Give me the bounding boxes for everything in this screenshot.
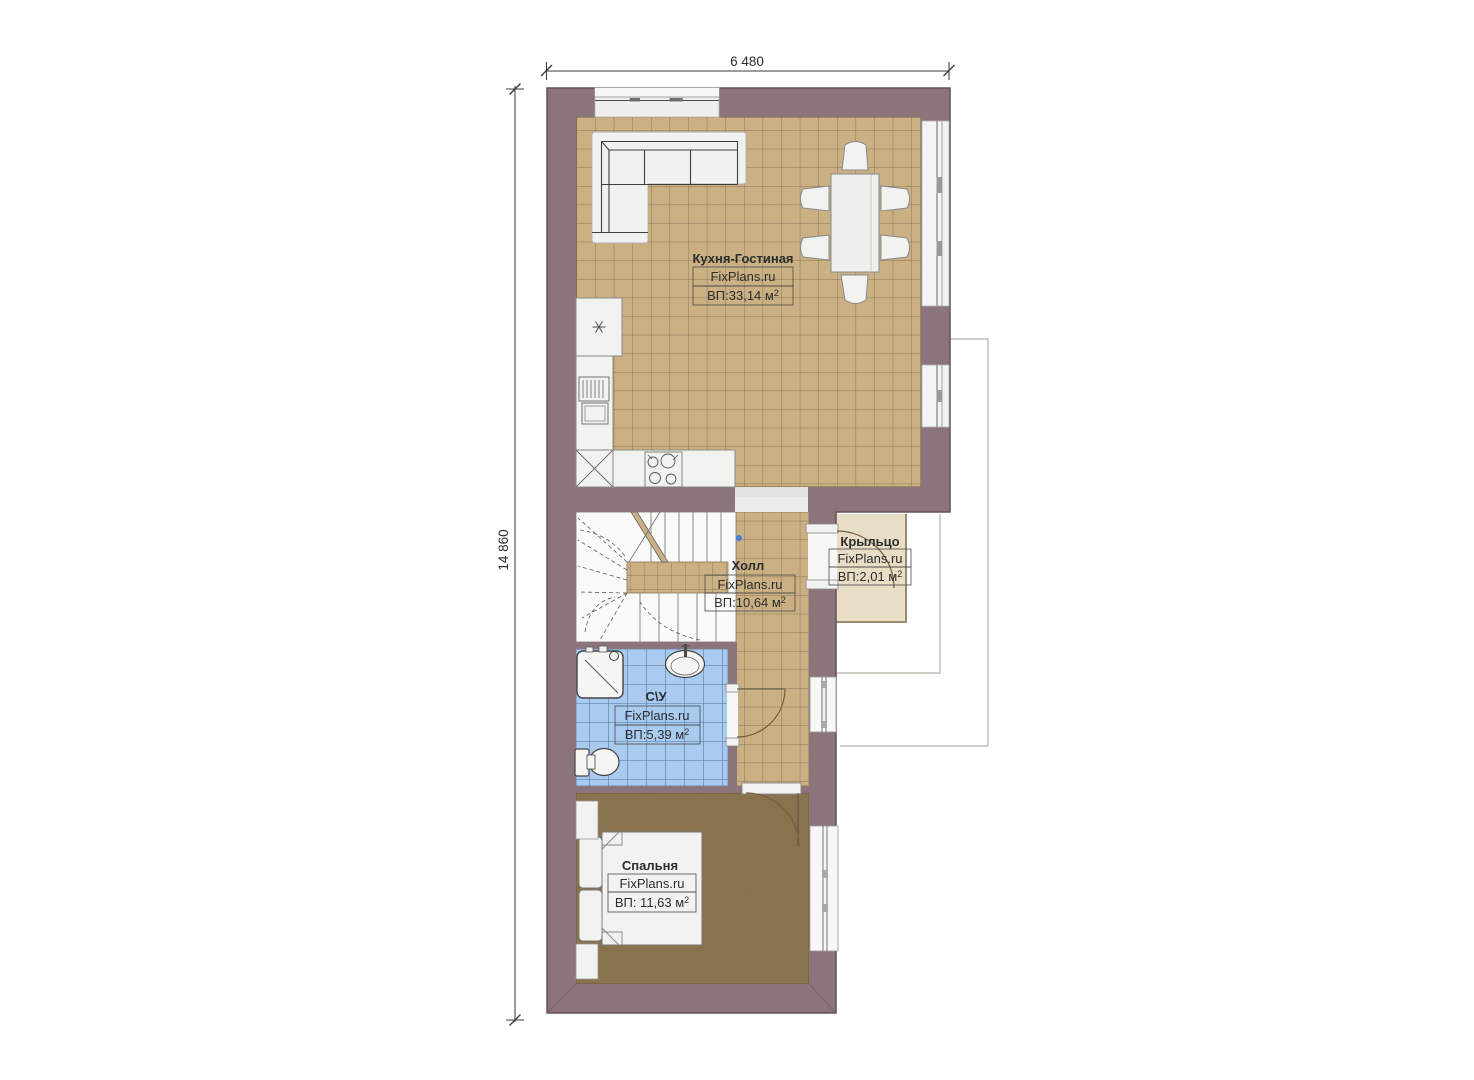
svg-text:ВП:33,14 м2: ВП:33,14 м2 [707, 288, 779, 303]
svg-text:FixPlans.ru: FixPlans.ru [619, 876, 684, 891]
svg-text:FixPlans.ru: FixPlans.ru [624, 708, 689, 723]
svg-text:ВП:5,39 м2: ВП:5,39 м2 [625, 727, 690, 742]
svg-text:FixPlans.ru: FixPlans.ru [710, 269, 775, 284]
svg-text:FixPlans.ru: FixPlans.ru [837, 551, 902, 566]
svg-text:FixPlans.ru: FixPlans.ru [717, 577, 782, 592]
svg-text:Крыльцо: Крыльцо [840, 534, 899, 549]
svg-text:ВП:10,64 м2: ВП:10,64 м2 [714, 595, 786, 610]
svg-text:6 480: 6 480 [730, 54, 764, 69]
svg-text:Холл: Холл [732, 558, 765, 573]
svg-text:С\У: С\У [645, 689, 667, 704]
svg-text:Кухня-Гостиная: Кухня-Гостиная [692, 251, 793, 266]
svg-text:Спальня: Спальня [622, 858, 678, 873]
svg-text:ВП:2,01 м2: ВП:2,01 м2 [838, 569, 903, 584]
svg-text:ВП: 11,63 м2: ВП: 11,63 м2 [615, 895, 689, 910]
svg-text:14 860: 14 860 [496, 529, 511, 570]
